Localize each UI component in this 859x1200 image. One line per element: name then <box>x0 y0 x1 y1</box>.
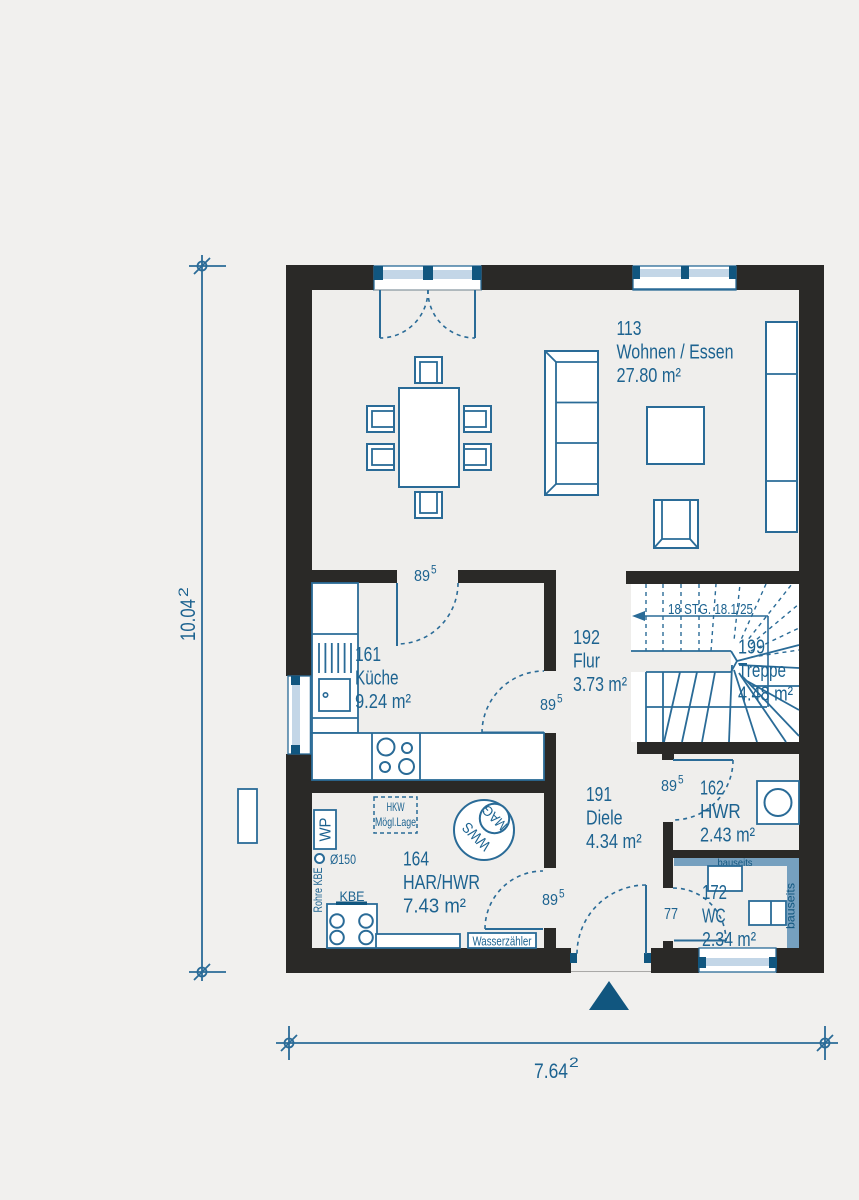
svg-text:9.24 m²: 9.24 m² <box>355 691 411 713</box>
svg-text:2.43 m²: 2.43 m² <box>700 825 755 847</box>
svg-text:Küche: Küche <box>355 668 399 690</box>
svg-text:2: 2 <box>175 587 191 597</box>
svg-text:Treppe: Treppe <box>738 660 786 682</box>
svg-text:Mögl.Lage: Mögl.Lage <box>375 815 416 829</box>
svg-text:191: 191 <box>586 784 612 806</box>
svg-text:7.43 m²: 7.43 m² <box>403 896 466 918</box>
svg-text:7.64: 7.64 <box>534 1060 568 1083</box>
svg-text:HWR: HWR <box>700 801 741 823</box>
svg-text:162: 162 <box>700 778 724 800</box>
svg-text:3.73 m²: 3.73 m² <box>573 674 627 696</box>
svg-text:113: 113 <box>617 318 642 340</box>
svg-text:Wasserzähler: Wasserzähler <box>473 935 532 949</box>
svg-text:Ø150: Ø150 <box>330 852 356 867</box>
svg-text:HAR/HWR: HAR/HWR <box>403 872 480 894</box>
svg-text:2.34 m²: 2.34 m² <box>702 929 756 951</box>
svg-text:HKW: HKW <box>387 800 405 814</box>
svg-text:89: 89 <box>414 568 430 585</box>
svg-text:5: 5 <box>678 773 684 787</box>
svg-text:4.34 m²: 4.34 m² <box>586 831 642 853</box>
svg-text:164: 164 <box>403 849 429 871</box>
svg-text:199: 199 <box>738 637 765 659</box>
svg-text:10.04: 10.04 <box>177 599 200 641</box>
svg-text:161: 161 <box>355 644 381 666</box>
svg-text:Diele: Diele <box>586 808 623 830</box>
svg-text:WP: WP <box>318 818 335 842</box>
svg-text:Rohre KBE: Rohre KBE <box>311 868 325 913</box>
svg-text:89: 89 <box>540 697 556 714</box>
svg-text:5: 5 <box>559 887 565 901</box>
svg-text:5: 5 <box>431 563 437 577</box>
svg-text:WC: WC <box>702 906 726 928</box>
svg-text:Wohnen / Essen: Wohnen / Essen <box>617 342 734 364</box>
svg-text:27.80 m²: 27.80 m² <box>617 365 682 387</box>
svg-text:89: 89 <box>661 778 677 795</box>
svg-text:77: 77 <box>664 906 678 923</box>
svg-text:192: 192 <box>573 627 600 649</box>
svg-text:18 STG. 18.1/25: 18 STG. 18.1/25 <box>668 601 753 618</box>
svg-text:KBE: KBE <box>340 888 365 904</box>
svg-text:Flur: Flur <box>573 651 600 673</box>
svg-text:4.48 m²: 4.48 m² <box>738 684 793 706</box>
svg-text:5: 5 <box>557 692 563 706</box>
svg-text:2: 2 <box>569 1054 579 1070</box>
svg-text:89: 89 <box>542 892 558 909</box>
svg-text:172: 172 <box>702 882 727 904</box>
